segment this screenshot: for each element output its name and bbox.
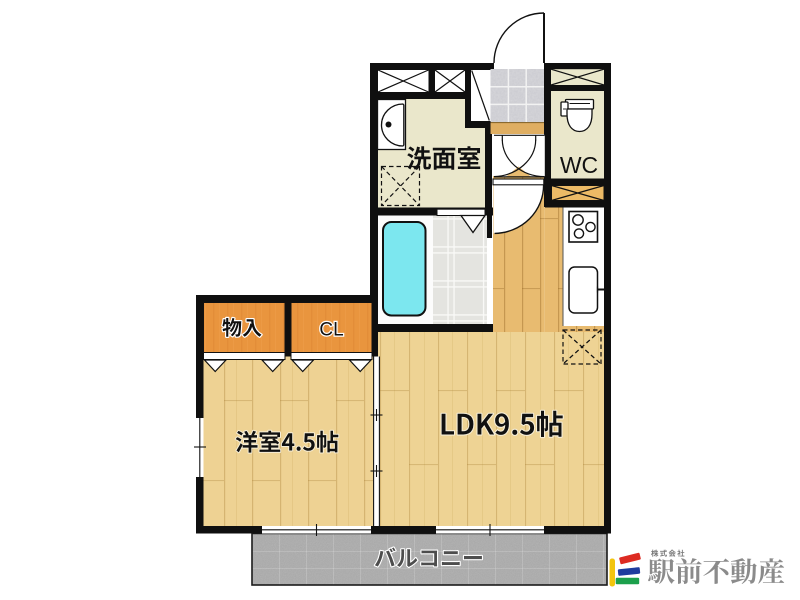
- svg-text:WC: WC: [560, 152, 598, 178]
- svg-text:CL: CL: [319, 320, 343, 341]
